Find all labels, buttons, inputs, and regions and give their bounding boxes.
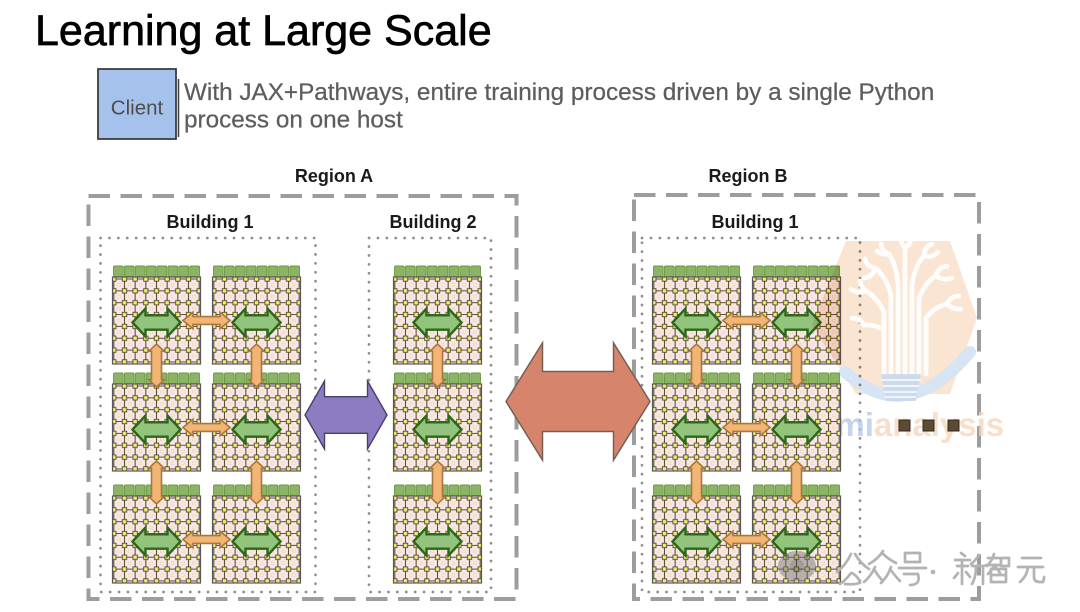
svg-text:process on one host: process on one host	[184, 107, 403, 134]
svg-text:Client: Client	[111, 97, 164, 120]
svg-text:Region A: Region A	[295, 166, 373, 186]
svg-text:Building 1: Building 1	[167, 212, 254, 232]
svg-text:Building 2: Building 2	[390, 212, 477, 232]
svg-text:Region B: Region B	[709, 166, 788, 186]
svg-text:Learning at Large Scale: Learning at Large Scale	[35, 7, 492, 55]
svg-text:With JAX+Pathways, entire trai: With JAX+Pathways, entire training proce…	[184, 79, 934, 106]
svg-text:Building 1: Building 1	[712, 212, 799, 232]
